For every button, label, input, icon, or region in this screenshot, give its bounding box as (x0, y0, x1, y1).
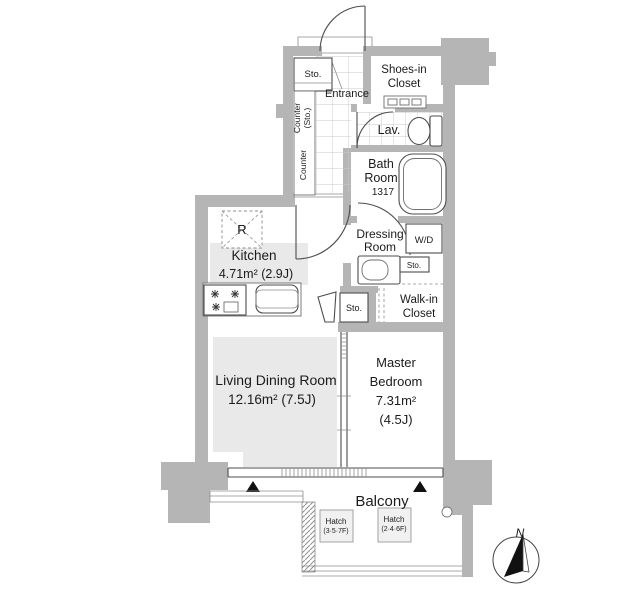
vanity-basin (362, 260, 388, 280)
label-balcony: Balcony (355, 493, 409, 510)
label-entrance: Entrance (325, 88, 369, 100)
entrance-outside-step (298, 37, 372, 46)
balcony-divider-hatch (302, 502, 315, 572)
label-kitchen-size: 4.71m² (2.9J) (219, 267, 293, 281)
balcony-hatch-2 (378, 508, 411, 542)
wall-segment (398, 216, 443, 223)
partition-lines (341, 332, 347, 467)
wall-nub (489, 52, 496, 66)
label-dressing-sto: Sto. (407, 261, 421, 270)
window-lines (228, 468, 443, 477)
wall-segment (338, 322, 455, 332)
wall-bottom-left (161, 462, 228, 523)
toilet-bowl (408, 118, 430, 145)
label-hatch2: Hatch (384, 515, 405, 524)
label-hall-sto: Sto. (346, 303, 362, 313)
label-bedroom-3: 7.31m² (376, 393, 417, 408)
living-door-leaf (318, 292, 336, 322)
balcony-drain (442, 507, 452, 517)
label-living: Living Dining Room (215, 372, 336, 388)
wall-nub (276, 104, 283, 118)
label-living-size: 12.16m² (7.5J) (228, 392, 316, 407)
wall-segment (363, 46, 445, 56)
label-shoes-closet-1: Shoes-in (381, 64, 426, 76)
label-refrigerator: R (237, 222, 246, 237)
entrance-door-arc (320, 6, 365, 51)
window-opening-triangle (246, 481, 260, 492)
shoes-shelf-cell (388, 99, 397, 105)
wall-segment (443, 56, 455, 470)
label-wd: W/D (415, 235, 434, 246)
balcony-hatch-1 (320, 510, 353, 542)
sliding-partition (337, 332, 351, 467)
wall-segment (368, 290, 376, 322)
balcony-rail-left (210, 491, 303, 502)
label-bedroom-1: Master (376, 355, 416, 370)
wall-segment (351, 145, 443, 152)
kitchen-sink (256, 285, 298, 313)
floorplan-page: N Sto. Counter (Sto.) Counter Entrance S… (0, 0, 640, 594)
label-bath-2: Room (364, 171, 397, 185)
compass-needle (504, 534, 523, 577)
label-counter-lower: Counter (298, 150, 308, 180)
wall-segment (351, 104, 357, 112)
label-hatch2-floors: (2·4·6F) (381, 526, 406, 533)
stove-grill (224, 302, 238, 312)
label-counter-upper-1: Counter (292, 103, 302, 133)
label-hatch1: Hatch (326, 517, 347, 526)
label-bedroom-2: Bedroom (370, 374, 423, 389)
partition-tick (337, 396, 351, 430)
compass: N (493, 526, 539, 583)
stove-burner-icon (231, 290, 239, 298)
bathtub-inner (404, 159, 442, 210)
label-entrance-sto: Sto. (305, 69, 322, 80)
wall-segment (195, 195, 208, 467)
wall-segment (343, 263, 351, 290)
label-bath-1: Bath (368, 157, 394, 171)
window-sill-hatch (282, 468, 366, 477)
label-lav: Lav. (378, 123, 401, 137)
label-hatch1-floors: (3·5·7F) (323, 528, 348, 535)
balcony-rail-bottom (302, 566, 462, 576)
stove-burner-icon (212, 303, 220, 311)
wall-bottom-right (443, 460, 492, 577)
label-bath-3: 1317 (372, 187, 395, 198)
wall-segment (343, 216, 357, 223)
shoes-shelf-cell (400, 99, 409, 105)
wall-segment (195, 195, 295, 207)
toilet-tank (430, 116, 442, 146)
label-walkin-2: Closet (403, 308, 436, 320)
floorplan-svg: N Sto. Counter (Sto.) Counter Entrance S… (0, 0, 640, 594)
compass-north-label: N (516, 526, 525, 540)
label-bedroom-4: (4.5J) (379, 412, 412, 427)
stove-burner-icon (211, 290, 219, 298)
label-kitchen: Kitchen (231, 248, 276, 263)
south-windows (228, 468, 443, 492)
partition-ladder (341, 334, 347, 358)
label-dressing-2: Room (364, 240, 396, 254)
label-walkin-1: Walk-in (400, 294, 438, 306)
shoes-shelf-cell (412, 99, 421, 105)
window-opening-triangle (413, 481, 427, 492)
label-dressing-1: Dressing (356, 227, 403, 241)
label-counter-upper-2: (Sto.) (302, 107, 312, 128)
label-shoes-closet-2: Closet (388, 78, 421, 90)
